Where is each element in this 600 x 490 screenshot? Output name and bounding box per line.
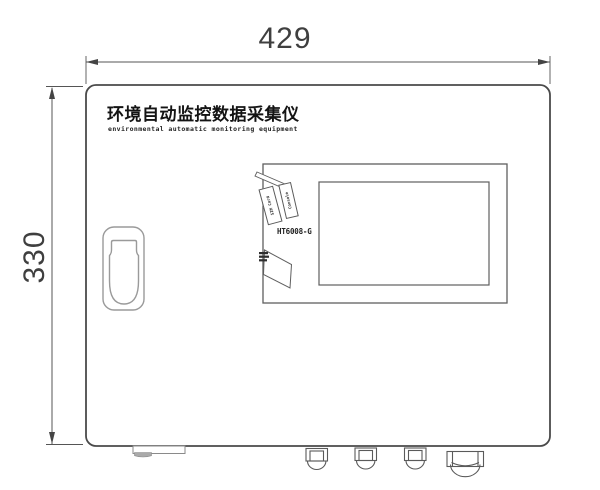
device-title-english: environmental automatic monitoring equip… [108, 125, 298, 133]
height-dimension-value: 330 [18, 230, 52, 283]
mounting-tab-clip [135, 453, 152, 458]
width-dimension-value: 429 [220, 22, 350, 56]
arrowhead-left [86, 59, 98, 65]
dimension-width [86, 56, 550, 84]
console-label-text: Console [284, 192, 293, 210]
mounting-tab [133, 446, 185, 457]
sim-card-label-text: SIM Card [266, 195, 276, 215]
cable-gland-2 [355, 448, 377, 469]
cable-gland-4-large [447, 452, 484, 477]
cable-glands [306, 448, 484, 477]
device-title-chinese: 环境自动监控数据采集仪 [107, 100, 300, 125]
cable-gland-3 [405, 448, 427, 469]
screen [319, 182, 489, 285]
cable-gland-1 [306, 449, 328, 470]
technical-drawing: 429 330 环境自动监控数据采集仪 environmental automa… [0, 0, 600, 490]
arrowhead-top [49, 87, 55, 99]
arrowhead-bottom [49, 432, 55, 444]
drawing-canvas [0, 0, 600, 490]
arrowhead-right [538, 59, 550, 65]
device-model-number: HT6008-G [277, 227, 312, 236]
